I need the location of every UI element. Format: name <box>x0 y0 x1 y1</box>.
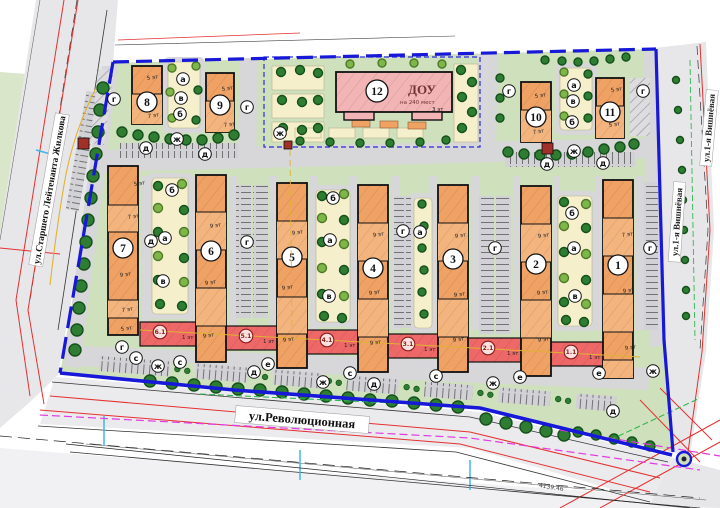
section-floors: 1 эт <box>344 343 356 349</box>
tree <box>560 248 569 257</box>
tree <box>574 58 582 66</box>
play-equipment <box>408 122 426 129</box>
letter-marker: ж <box>649 367 657 376</box>
tree <box>154 182 163 191</box>
tree <box>180 278 189 287</box>
tree <box>69 344 81 356</box>
tree <box>410 59 418 67</box>
parking-row <box>394 196 411 328</box>
building-number: 4 <box>370 263 376 275</box>
letter-marker: е <box>265 360 271 369</box>
driveway <box>636 176 643 330</box>
tree <box>340 216 349 225</box>
letter-marker: д <box>600 159 607 168</box>
section-number: 6.1 <box>155 329 166 336</box>
tree <box>197 135 207 145</box>
tree <box>73 302 85 314</box>
tree <box>458 124 467 133</box>
tree <box>496 94 504 102</box>
tree <box>178 302 187 311</box>
letter-marker: д <box>610 407 617 416</box>
courtyard <box>414 198 432 328</box>
tree <box>584 114 592 122</box>
tree <box>458 93 467 102</box>
parking-row <box>253 185 268 318</box>
tree <box>606 55 614 63</box>
tree <box>682 257 689 264</box>
tree <box>582 276 591 285</box>
tree <box>584 70 592 78</box>
tree <box>629 139 639 149</box>
tree <box>340 266 349 275</box>
building-number: 10 <box>530 112 542 124</box>
boundary-corner-point <box>682 457 687 462</box>
section-floors: 1 эт <box>507 351 519 357</box>
tree <box>683 287 690 294</box>
tree <box>298 98 307 107</box>
dou-floors: 3 эт <box>432 107 444 113</box>
tree <box>277 68 286 77</box>
letter-marker: с <box>178 358 183 367</box>
letter-marker: г <box>112 95 116 104</box>
letter-marker: а <box>417 228 422 237</box>
letter-marker: ж <box>570 147 578 156</box>
tree <box>520 421 532 433</box>
building-number: 12 <box>371 86 383 98</box>
letter-marker: г <box>641 87 645 96</box>
tree <box>149 132 159 142</box>
tree <box>320 312 329 321</box>
tree <box>180 206 189 215</box>
site-plan-page: 12 ДОУ на 240 мест 3 эт 7654321891011 <box>0 0 720 508</box>
letter-marker: г <box>120 343 124 352</box>
letter-marker: г <box>245 103 249 112</box>
tree <box>180 254 189 263</box>
driveway <box>270 176 277 330</box>
tree <box>622 53 630 61</box>
tree <box>584 92 592 100</box>
tree <box>562 316 571 325</box>
letter-marker: а <box>162 234 167 243</box>
tree <box>418 288 426 296</box>
letter-marker: д <box>202 150 209 159</box>
tree <box>97 82 109 94</box>
tree <box>318 214 327 223</box>
tree <box>133 130 143 140</box>
letter-marker: ж <box>154 362 162 371</box>
building-number: 11 <box>605 107 616 119</box>
parking-row <box>479 196 494 334</box>
tree <box>229 130 239 140</box>
tree <box>314 124 323 133</box>
building-2: 2 <box>521 186 551 376</box>
tree <box>418 244 426 252</box>
tree <box>168 64 176 72</box>
tree <box>156 300 165 309</box>
dou-capacity: на 240 мест <box>400 100 436 106</box>
tree <box>178 180 187 189</box>
section-floors: 1 эт <box>182 335 194 341</box>
tree <box>677 137 684 144</box>
tree <box>338 314 347 323</box>
parking-row <box>496 196 511 334</box>
tree <box>541 56 549 64</box>
letter-marker: б <box>177 109 183 119</box>
letter-marker: г <box>507 87 511 96</box>
parking-row <box>644 182 658 330</box>
tree <box>503 147 513 157</box>
letter-marker: с <box>134 354 139 363</box>
tree <box>580 318 589 327</box>
tree <box>213 133 223 143</box>
letter-marker: д <box>143 144 150 153</box>
letter-marker: г <box>401 227 405 236</box>
tree <box>378 59 386 67</box>
tree <box>582 224 591 233</box>
tree <box>582 300 591 309</box>
tree <box>194 86 202 94</box>
parking-row <box>236 185 251 318</box>
master-plan-drawing: 12 ДОУ на 240 мест 3 эт 7654321891011 <box>0 0 720 508</box>
driveway <box>513 176 520 330</box>
tree <box>296 137 304 145</box>
tree <box>420 310 428 318</box>
section-number: 4.1 <box>322 337 333 344</box>
building-hatch <box>521 186 551 376</box>
driveway <box>230 176 237 330</box>
play-equipment <box>352 120 370 127</box>
letter-marker: д <box>371 380 378 389</box>
letter-marker: е <box>596 369 602 378</box>
tree <box>582 250 591 259</box>
building-number: 3 <box>450 254 456 266</box>
section-floors: 1 эт <box>424 347 436 353</box>
building-number: 1 <box>615 260 621 272</box>
tree <box>679 167 686 174</box>
transformer-box <box>542 143 553 154</box>
commercial-section-hatch <box>140 322 196 346</box>
transformer-box <box>284 141 292 149</box>
tree <box>615 142 625 152</box>
tree <box>558 57 566 65</box>
tree <box>318 264 327 273</box>
letter-marker: б <box>569 208 575 218</box>
letter-marker: г <box>245 238 249 247</box>
tree <box>296 66 305 75</box>
tree <box>599 144 609 154</box>
tree <box>519 149 529 159</box>
tree <box>356 139 364 147</box>
tree <box>500 417 512 429</box>
tree <box>154 204 163 213</box>
letter-marker: с <box>434 372 439 381</box>
tree <box>340 190 349 199</box>
tree <box>480 413 492 425</box>
letter-marker: а <box>571 81 576 90</box>
tree <box>582 200 591 209</box>
tree <box>180 228 189 237</box>
letter-marker: б <box>169 185 175 195</box>
letter-marker: ж <box>173 135 181 144</box>
tree <box>560 274 569 283</box>
letter-marker: в <box>178 94 183 103</box>
tree <box>583 147 593 157</box>
tree <box>278 96 287 105</box>
letter-marker: в <box>572 292 577 301</box>
letter-marker: а <box>571 244 576 253</box>
transformer-box <box>78 138 89 149</box>
tree <box>675 107 682 114</box>
letter-marker: ж <box>489 379 497 388</box>
tree <box>496 114 504 122</box>
tree <box>192 116 200 124</box>
letter-marker: в <box>326 292 331 301</box>
playground <box>397 128 423 138</box>
letter-marker: д <box>148 237 155 246</box>
letter-marker: г <box>493 244 497 253</box>
letter-marker: д <box>544 160 551 169</box>
letter-marker: а <box>180 75 185 84</box>
tree <box>560 298 569 307</box>
letter-marker: ж <box>319 378 327 387</box>
tree <box>340 240 349 249</box>
tree <box>117 127 127 137</box>
tree <box>673 77 680 84</box>
tree <box>418 200 426 208</box>
section-number: 3.1 <box>403 341 414 348</box>
building-number: 6 <box>208 246 214 258</box>
tree <box>318 192 327 201</box>
letter-marker: а <box>327 236 332 245</box>
letter-marker: е <box>517 373 523 382</box>
section-floors: 1 эт <box>263 339 275 345</box>
tree <box>314 96 323 105</box>
tree <box>386 139 394 147</box>
section-number: 2.1 <box>483 345 494 352</box>
tree <box>590 57 598 65</box>
building-12-dou: 12 ДОУ на 240 мест 3 эт <box>336 72 452 120</box>
letter-marker: д <box>251 368 258 377</box>
tree <box>154 252 163 261</box>
tree <box>340 292 349 301</box>
letter-marker: г <box>648 244 652 253</box>
tree <box>346 60 354 68</box>
building-number: 9 <box>217 100 223 112</box>
courtyard <box>152 178 188 314</box>
letter-marker: в <box>570 97 575 106</box>
tree <box>166 88 174 96</box>
playground <box>329 128 355 138</box>
tree <box>71 324 83 336</box>
tree <box>192 62 200 70</box>
section-number: 1.1 <box>566 349 577 356</box>
letter-marker: ж <box>276 129 284 138</box>
tree <box>560 68 568 76</box>
letter-marker: б <box>569 117 575 127</box>
tree <box>420 266 428 274</box>
tree <box>560 90 568 98</box>
section-floors: 1 эт <box>589 355 601 361</box>
section-number: 5.1 <box>241 333 252 340</box>
tree <box>442 136 450 144</box>
inner-road-v2 <box>476 54 498 150</box>
tree <box>560 222 569 231</box>
tree <box>468 78 477 87</box>
tree <box>457 66 466 75</box>
tree <box>683 313 690 320</box>
building-number: 8 <box>144 97 150 109</box>
tree <box>416 138 424 146</box>
tree <box>560 198 569 207</box>
play-equipment <box>380 121 398 128</box>
driveway <box>472 176 479 330</box>
tree <box>496 74 504 82</box>
tree <box>326 138 334 146</box>
building-number: 7 <box>120 243 126 255</box>
tree <box>314 69 323 78</box>
courtyard <box>316 190 350 322</box>
building-number: 5 <box>289 252 295 264</box>
letter-marker: с <box>348 369 353 378</box>
tree <box>298 126 307 135</box>
letter-marker: в <box>160 277 165 286</box>
tree <box>468 108 477 117</box>
tree <box>438 60 446 68</box>
playground <box>363 128 389 138</box>
letter-marker: б <box>330 193 336 203</box>
dou-label: ДОУ <box>408 82 436 97</box>
building-number: 2 <box>533 259 539 271</box>
